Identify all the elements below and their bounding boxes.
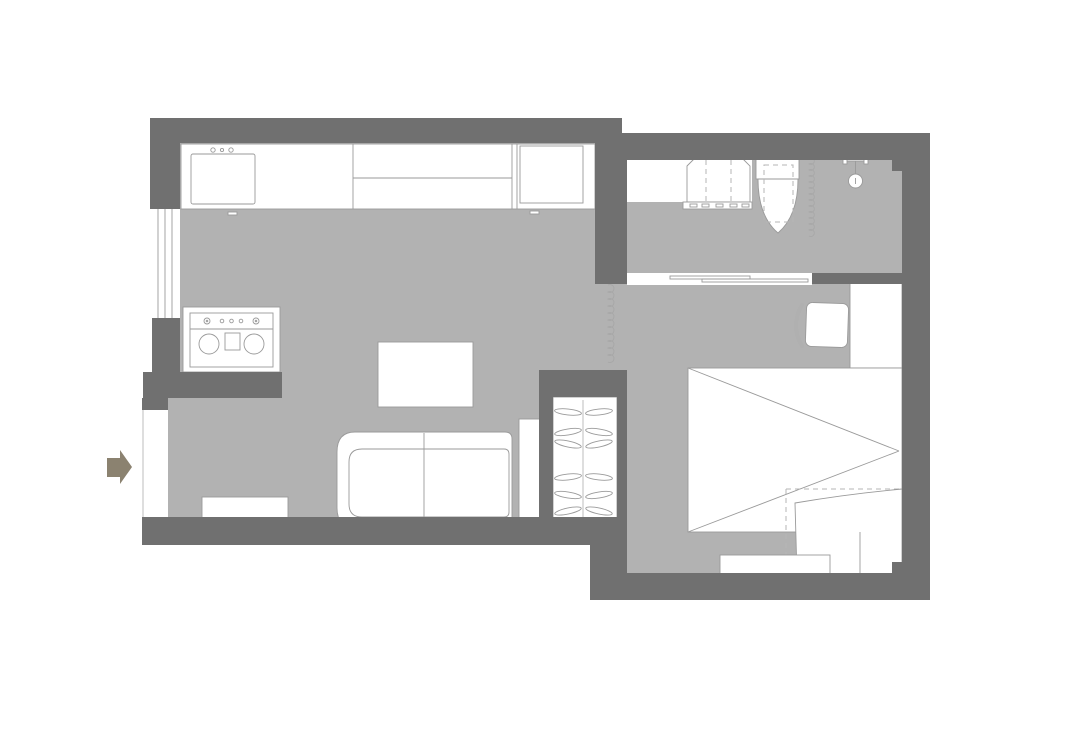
bottom-wall-bedroom <box>590 573 930 600</box>
stove <box>183 307 280 372</box>
left-wall-stub <box>142 398 168 410</box>
refrigerator-handle-icon <box>530 211 539 214</box>
kitchen-partition-wall <box>143 372 282 398</box>
cabinet-handle-icon <box>228 212 237 215</box>
washing-machine <box>687 158 750 202</box>
desk <box>850 283 902 368</box>
wardrobe-right-wall <box>617 370 627 573</box>
wardrobe-interior <box>553 397 617 525</box>
corner-pilaster <box>892 158 903 171</box>
refrigerator <box>520 146 583 203</box>
top-wall-kitchen <box>150 118 622 143</box>
kitchen-sink <box>191 154 255 204</box>
corner-pilaster <box>892 562 903 575</box>
stove-body <box>183 307 280 372</box>
floor-plan-svg <box>0 0 1080 737</box>
entry-arrow-icon <box>107 450 132 484</box>
entry-door-opening <box>142 410 168 517</box>
floor-plan-canvas <box>0 0 1080 737</box>
wardrobe <box>553 397 617 525</box>
wardrobe-left-wall <box>539 397 553 517</box>
window <box>152 209 180 318</box>
sliding-door <box>627 273 812 285</box>
window-opening <box>152 209 180 318</box>
bottom-wall-living <box>142 517 627 545</box>
coffee-table <box>378 342 473 407</box>
left-wall-mid <box>152 318 180 372</box>
sofa <box>337 432 512 528</box>
side-shelf <box>519 419 540 528</box>
left-wall-upper <box>150 118 180 209</box>
kitchen <box>181 144 595 215</box>
bathroom-bottom-wall <box>812 273 930 284</box>
right-wall <box>902 133 930 600</box>
entry <box>107 410 168 517</box>
top-wall-bathroom <box>622 133 930 160</box>
kitchen-bathroom-divider-wall <box>595 143 627 284</box>
wardrobe-top-wall <box>539 370 627 397</box>
bench <box>720 555 830 575</box>
